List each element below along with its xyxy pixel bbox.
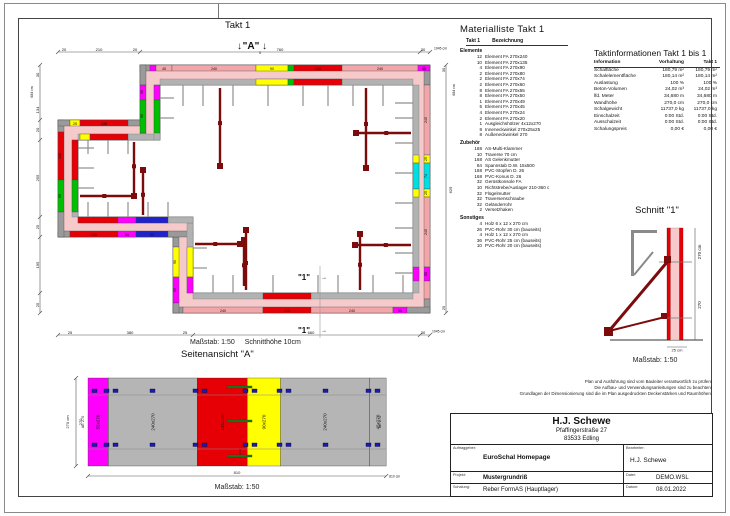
clamp	[252, 389, 257, 393]
disclaimer-line3: Grundlagen der Dimensionierung sind die …	[430, 391, 712, 397]
prop-joint	[132, 164, 136, 168]
section-a-arrow-left: ↓	[237, 41, 242, 52]
prop-foot	[357, 231, 363, 237]
plan-scale-note: Maßstab: 1:50Schnitthöhe 10cm	[190, 339, 311, 346]
dim-label-left: 20	[35, 127, 40, 132]
element-size-label: 240	[211, 67, 217, 71]
section-a-label: "A"	[243, 41, 260, 52]
drawing-sheet: Takt 1 452409013524055240257425240552401…	[0, 0, 730, 516]
date-label: Datum:	[626, 485, 638, 489]
takt-info-cell: lfd. Meter	[594, 94, 646, 101]
takt-info-row: Beton-Volumen24,02 m³24,02 m³	[594, 87, 720, 94]
plan-drawing: 4524090135240552402574252405524013524055…	[18, 18, 463, 350]
prop-foot	[131, 193, 137, 199]
section-1-arrow-top: →	[321, 275, 327, 281]
dim-label-left: 30	[35, 72, 40, 77]
element-size-label: 90	[150, 233, 154, 237]
takt-info-cell: Ausschalzeit	[594, 120, 646, 127]
company-street: Pfaffingerstraße 27	[451, 428, 712, 436]
dim-label-bottom: 380	[127, 330, 134, 335]
dim-label-right: 684 cm	[452, 84, 456, 95]
prop-foot	[243, 227, 249, 233]
company-city: 83533 Edling	[451, 436, 712, 444]
prop-foot	[353, 130, 359, 136]
elevation-panel-label: 240x270	[323, 413, 328, 431]
dim-label: 270 cm	[65, 415, 70, 429]
material-item-qty: 2	[460, 207, 482, 213]
fold-mark	[218, 4, 219, 18]
clamp	[193, 443, 198, 447]
dim-label-right: 25	[441, 305, 446, 310]
title-block-row-formwork: Schalung: Reber FormAS (Hauptlager) Datu…	[451, 484, 712, 496]
editor-cell: Bearbeiter: H.J. Schewe	[624, 445, 712, 471]
element-size-label: 55	[422, 67, 426, 71]
dim-label-top: 760	[277, 47, 284, 52]
takt-info-cell: Schalgewicht	[594, 107, 646, 114]
inner-formwork-element	[72, 140, 78, 180]
takt-info-cell: 34,680 m	[684, 94, 717, 101]
section-dim-height2: 270	[697, 301, 702, 309]
section-wall-core	[671, 228, 680, 340]
side-view-title: Seitenansicht "A"	[181, 349, 254, 360]
element-size-label: 240	[424, 229, 428, 235]
elevation-panel-label: 135x270	[220, 413, 225, 431]
takt-info: Taktinformationen Takt 1 bis 1 Informati…	[594, 48, 720, 134]
takt-info-cell: 180,14 m²	[684, 74, 717, 81]
scaffold-bracket-platform	[631, 230, 657, 233]
material-list-col1: Takt 1	[466, 38, 480, 44]
inner-formwork-element	[294, 79, 342, 85]
formwork-element	[150, 65, 156, 71]
clamp	[323, 443, 328, 447]
section-a-sub: 5	[259, 51, 261, 55]
element-size-label: 240	[377, 67, 383, 71]
inner-formwork-element	[288, 79, 294, 85]
dim-label: 270	[78, 418, 83, 425]
takt-info-cell: Schalungspreis	[594, 127, 646, 134]
plan-scale: Maßstab: 1:50	[190, 339, 235, 346]
inner-formwork-element	[136, 217, 168, 223]
takt-info-cell: Takt 1	[684, 60, 717, 67]
elevation-panel-label: 55x270	[96, 414, 101, 429]
dim-label: 810 cm	[389, 475, 400, 479]
formwork-element	[173, 303, 179, 313]
clamp	[375, 443, 380, 447]
takt-info-row: lfd. Meter34,680 m34,680 m	[594, 94, 720, 101]
takt-info-cell: 34,680 m	[646, 94, 684, 101]
material-list-title: Materialliste Takt 1	[460, 24, 595, 35]
prop-joint	[384, 243, 388, 247]
prop-joint	[141, 193, 145, 197]
project-cell: Projekt: Mustergrundriß	[451, 472, 624, 483]
tie-rod	[227, 386, 252, 388]
file-label: Datei:	[626, 473, 636, 477]
title-block: H.J. Schewe Pfaffingerstraße 27 83533 Ed…	[450, 413, 713, 497]
takt-info-cell: 24,02 m³	[684, 87, 717, 94]
formwork-value: Reber FormAS (Hauptlager)	[483, 487, 558, 493]
material-item-row: 10PVC-Rohr 20 cm (bauseits)	[460, 243, 595, 249]
takt-info-cell: 11737,0 kg	[646, 107, 684, 114]
client-cell: Auftraggeber: EuroSchal Homepage	[451, 445, 624, 471]
tie-rod	[227, 455, 252, 457]
prop-joint	[242, 263, 246, 267]
element-size-label: 50	[173, 288, 177, 292]
push-pull-prop	[609, 261, 668, 331]
elevation-panel-label: 90x270	[261, 414, 266, 429]
material-list-col2: Bezeichnung	[492, 38, 523, 44]
section-title: Schnitt "1"	[635, 205, 679, 216]
clamp	[104, 443, 109, 447]
inner-formwork-element	[413, 163, 419, 189]
material-item-qty: 8	[460, 132, 482, 138]
clamp	[113, 443, 118, 447]
scaffold-bracket-post	[631, 230, 634, 276]
inner-formwork-element	[413, 155, 419, 163]
dim-label-left: 684 cm	[30, 86, 34, 97]
element-size-label: 135	[101, 122, 107, 126]
editor-value: H.J. Schewe	[630, 457, 667, 464]
clamp	[202, 389, 207, 393]
title-block-company: H.J. Schewe Pfaffingerstraße 27 83533 Ed…	[451, 414, 712, 445]
dim-label-left: 25	[35, 302, 40, 307]
clamp	[243, 443, 248, 447]
formwork-element	[424, 281, 430, 299]
clamp	[92, 443, 97, 447]
brace-head	[661, 313, 667, 319]
element-size-label: 55	[398, 309, 402, 313]
prop-foot	[140, 167, 146, 173]
section-drawing: Schnitt "1" 270 cm 270 25 cm Maßstab: 1:…	[595, 200, 720, 368]
inner-formwork-element	[413, 189, 419, 197]
takt-info-cell: 0:00 Std.	[684, 120, 717, 127]
inner-formwork-element	[256, 79, 288, 85]
element-size-label: 25	[424, 157, 428, 161]
material-item-qty: 10	[460, 243, 482, 249]
element-size-label: 240	[220, 309, 226, 313]
company-name: H.J. Schewe	[451, 414, 712, 428]
element-size-label: 55	[125, 233, 129, 237]
takt-info-header-row: InformationVorhaltungTakt 1	[594, 60, 720, 68]
takt-info-body: InformationVorhaltungTakt 1Schalfläche18…	[594, 60, 720, 134]
ae-label: AE 270	[378, 416, 382, 428]
title-block-row-client: Auftraggeber: EuroSchal Homepage Bearbei…	[451, 445, 712, 472]
material-item-row: 2Versetzhaken	[460, 207, 595, 213]
clamp	[202, 443, 207, 447]
element-size-label: 90	[173, 260, 177, 264]
dim-label-top: 1045 cm	[434, 47, 447, 51]
prop-joint	[218, 121, 222, 125]
section-dim-thickness: 25 cm	[672, 348, 684, 353]
formwork-label: Schalung:	[453, 485, 470, 489]
formwork-element	[407, 307, 430, 313]
element-size-label: 135	[284, 309, 290, 313]
inner-formwork-element	[80, 134, 90, 140]
inner-formwork-element	[154, 100, 160, 133]
element-size-label: 90	[140, 114, 144, 118]
prop-foot	[241, 237, 247, 243]
formwork-element	[288, 65, 294, 71]
element-size-label: 135	[315, 67, 321, 71]
dim-label-bottom: 25	[68, 330, 73, 335]
formwork-element	[128, 120, 140, 126]
disclaimer: Plan und Ausführung sind vom Bauleiter v…	[430, 379, 712, 396]
material-item-name: Versetzhaken	[485, 207, 513, 213]
prop-joint	[358, 263, 362, 267]
dim-label-top: 30	[421, 47, 426, 52]
formwork-element	[140, 65, 146, 85]
clamp	[150, 443, 155, 447]
element-size-label: 25	[424, 191, 428, 195]
takt-info-cell: Vorhaltung	[646, 60, 684, 67]
inner-formwork-element	[187, 247, 193, 277]
clamp	[286, 389, 291, 393]
material-list-body: Elemente12Element FA 270x24010Element FA…	[460, 48, 595, 249]
takt-info-title: Taktinformationen Takt 1 bis 1	[594, 48, 720, 58]
clamp	[366, 443, 371, 447]
inner-formwork-element	[187, 277, 193, 293]
material-item-row: 8Außeneckwinkel 270	[460, 132, 595, 138]
clamp	[277, 389, 282, 393]
prop-foot	[352, 242, 358, 248]
clamp	[366, 389, 371, 393]
dim-label: 810	[234, 470, 241, 475]
material-list: Materialliste Takt 1 Takt 1 Bezeichnung …	[460, 24, 595, 249]
file-cell: Datei: DEMO.WSL	[624, 472, 712, 483]
element-size-label: 74	[424, 174, 428, 178]
dim-label-top: 210	[96, 47, 103, 52]
clamp	[375, 389, 380, 393]
tie-rod	[227, 420, 252, 422]
takt-info-cell: Beton-Volumen	[594, 87, 646, 94]
clamp	[286, 443, 291, 447]
file-value: DEMO.WSL	[656, 475, 689, 481]
scaffold-bracket-diagonal	[634, 252, 653, 275]
section-wall-form-left	[667, 228, 671, 340]
inner-formwork-element	[263, 293, 311, 299]
inner-formwork-element	[72, 180, 78, 212]
takt-info-row: Ausschalzeit0:00 Std.0:00 Std.	[594, 120, 720, 127]
element-size-label: 55	[424, 272, 428, 276]
material-item-name: Außeneckwinkel 270	[485, 132, 527, 138]
dim-label-bottom: 1045 cm	[432, 330, 445, 334]
dim-label-left: 134	[35, 106, 40, 113]
formwork-element	[58, 120, 70, 126]
takt-info-row: Schalelementfläche180,14 m²180,14 m²	[594, 74, 720, 81]
inner-formwork-element	[413, 267, 419, 281]
inner-formwork-element	[78, 217, 118, 223]
clamp	[277, 443, 282, 447]
dim-label-left: 195	[35, 261, 40, 268]
clamp	[193, 389, 198, 393]
material-item-name: PVC-Rohr 20 cm (bauseits)	[485, 243, 541, 249]
prop-foot	[363, 165, 369, 171]
takt-info-cell: 0,00 €	[646, 127, 684, 134]
takt-info-cell: 180,14 m²	[646, 74, 684, 81]
formwork-element	[424, 71, 430, 85]
section-1-label-bottom: "1"	[298, 326, 310, 335]
side-view-scale: Maßstab: 1:50	[215, 484, 260, 491]
dim-label-top: 20	[133, 47, 138, 52]
section-dim-height: 270 cm	[697, 244, 702, 259]
clamp	[252, 443, 257, 447]
clamp	[243, 389, 248, 393]
clamp	[104, 389, 109, 393]
prop-joint	[384, 131, 388, 135]
dim-label-top: 20	[62, 47, 67, 52]
dim-label-right: 629	[448, 186, 453, 193]
inner-formwork-element	[118, 217, 136, 223]
element-size-label: 90	[270, 67, 274, 71]
element-size-label: 135	[91, 233, 97, 237]
elevation-panel-label: 240x270	[150, 413, 155, 431]
dim-label-left: 25	[35, 224, 40, 229]
inner-formwork-element	[154, 85, 160, 100]
clamp	[113, 389, 118, 393]
material-list-header: Takt 1 Bezeichnung	[466, 38, 568, 46]
element-size-label: 25	[73, 122, 77, 126]
element-size-label: 240	[424, 117, 428, 123]
formwork-element	[173, 237, 179, 247]
element-size-label: 90	[58, 194, 62, 198]
section-scale: Maßstab: 1:50	[633, 357, 678, 364]
dim-label-right: 30	[441, 67, 446, 72]
formwork-element	[58, 212, 64, 237]
date-cell: Datum: 08.01.2022	[624, 484, 712, 496]
formwork-cell: Schalung: Reber FormAS (Hauptlager)	[451, 484, 624, 496]
element-size-label: 30	[140, 90, 144, 94]
date-value: 08.01.2022	[656, 487, 686, 493]
element-size-label: 240	[349, 309, 355, 313]
dim-label-bottom: 25	[183, 330, 188, 335]
prop-foot	[217, 163, 223, 169]
clamp	[150, 389, 155, 393]
takt-info-row: Schalungspreis0,00 €0,00 €	[594, 127, 720, 134]
clamp	[92, 389, 97, 393]
element-size-label: 135	[58, 153, 62, 159]
clamp	[323, 389, 328, 393]
side-view-drawing: 55x270240x270135x27090x270240x27045x270A…	[60, 373, 400, 503]
prop-joint	[213, 242, 217, 246]
prop-head	[664, 256, 671, 263]
prop-joint	[364, 122, 368, 126]
takt-info-cell: 0:00 Std.	[646, 120, 684, 127]
dim-label-bottom: 30	[421, 330, 426, 335]
element-size-label: 45	[162, 67, 166, 71]
prop-joint	[102, 194, 106, 198]
takt-info-cell: Information	[594, 60, 646, 67]
section-1-arrow-bottom: →	[321, 328, 327, 334]
takt-info-cell: 11737,0 kg	[684, 107, 717, 114]
takt-info-cell: Schalelementfläche	[594, 74, 646, 81]
section-a-arrow-right: ↓	[262, 41, 267, 52]
client-value: EuroSchal Homepage	[483, 454, 550, 461]
project-value: Mustergrundriß	[483, 475, 527, 481]
project-label: Projekt:	[453, 473, 466, 477]
prop-foot	[604, 327, 613, 336]
title-block-row-project: Projekt: Mustergrundriß Datei: DEMO.WSL	[451, 472, 712, 484]
dim-label-left: 255	[35, 174, 40, 181]
takt-info-cell: 24,02 m³	[646, 87, 684, 94]
client-label: Auftraggeber:	[453, 446, 476, 450]
inner-formwork-element	[90, 134, 128, 140]
section-wall-form-right	[680, 228, 684, 340]
plan-cutheight: Schnitthöhe 10cm	[245, 339, 301, 346]
takt-info-cell: 0,00 €	[684, 127, 717, 134]
section-1-label-top: "1"	[298, 273, 310, 282]
takt-info-row: Schalgewicht11737,0 kg11737,0 kg	[594, 107, 720, 114]
editor-label: Bearbeiter:	[626, 446, 645, 450]
